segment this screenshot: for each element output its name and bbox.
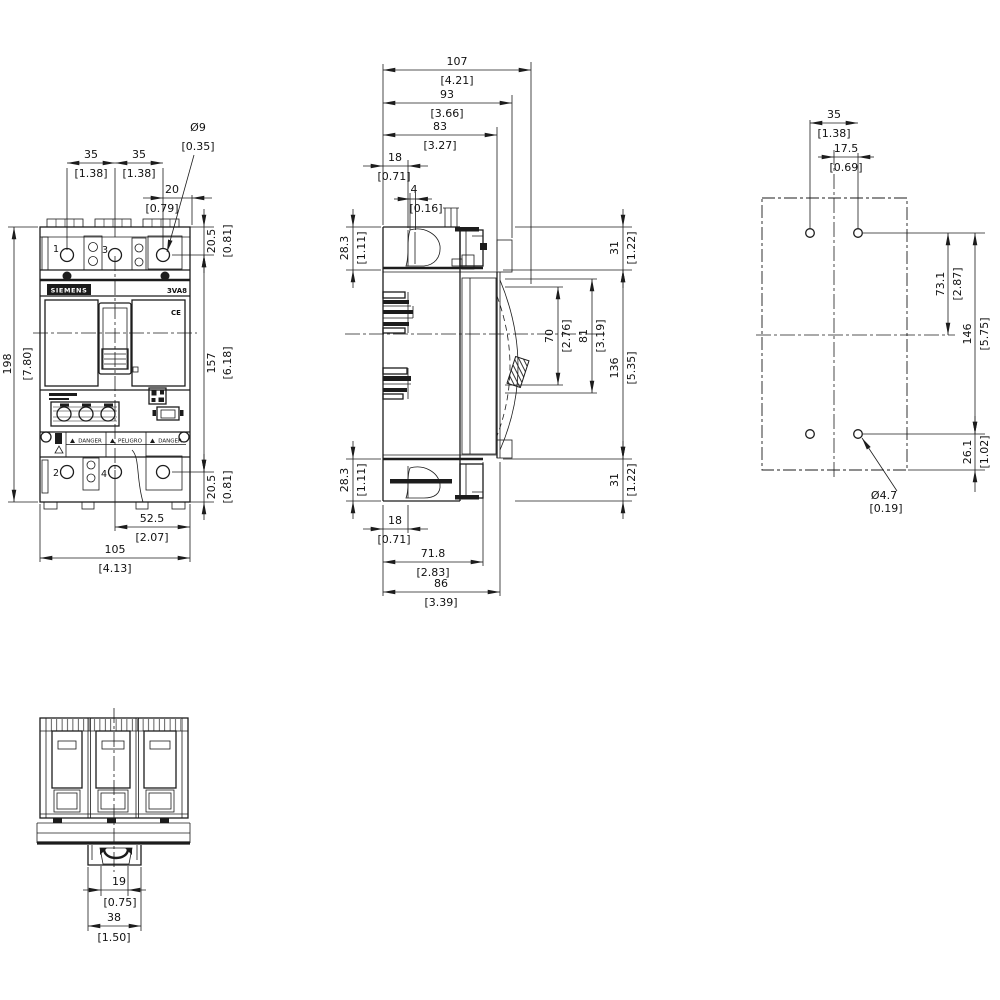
dim-depth-86-in: [3.39] — [424, 596, 457, 609]
brand-text: SIEMENS — [51, 287, 88, 295]
terminal-label-4: 4 — [101, 469, 107, 480]
dim-depth-107-mm: 107 — [447, 55, 468, 68]
dim-inner-height-in: [6.18] — [221, 346, 234, 379]
dim-lower-26-1-in: [1.02] — [978, 435, 991, 468]
dim-bottom-margin-mm: 20.5 — [205, 475, 218, 500]
dim-top-31-in: [1.22] — [625, 231, 638, 264]
breaker-phantom-outline — [762, 198, 907, 470]
cover-screw-top-right — [161, 272, 170, 281]
dim-top-31-mm: 31 — [608, 241, 621, 255]
dim-overall-width-in: [4.13] — [98, 562, 131, 575]
dim-cut-70-mm: 70 — [543, 329, 556, 343]
dim-bottom-margin-in: [0.81] — [221, 470, 234, 503]
warning-text-3: DANGER — [158, 439, 182, 445]
warning-text-2: PELIGRO — [118, 439, 143, 445]
dim-depth-86-mm: 86 — [434, 577, 448, 590]
dim-pitch-left-mm: 35 — [84, 148, 98, 161]
dim-half-width-in: [2.07] — [135, 531, 168, 544]
warning-icon — [55, 433, 62, 444]
model-text: 3VA8 — [167, 287, 187, 295]
dim-step-4-mm: 4 — [411, 183, 418, 196]
pole-compartment-middle — [96, 731, 130, 788]
dim-bot-28-3-mm: 28.3 — [338, 468, 351, 493]
dimension-drawing: 1 3 SIEMENS 3VA8 CE — [0, 0, 1000, 1000]
dim-cut-81-mm: 81 — [577, 329, 590, 343]
terminal-hole-1 — [61, 249, 74, 262]
dim-depth-83-in: [3.27] — [423, 139, 456, 152]
dim-front-136-mm: 136 — [608, 358, 621, 379]
dim-depth-71-8-mm: 71.8 — [421, 547, 446, 560]
dim-inner-height-mm: 157 — [205, 353, 218, 374]
dim-hole-dia-mm: Ø9 — [190, 121, 206, 134]
drilling-pattern-dimensions: 35 [1.38] 17.5 [0.69] 73.1 [2.87] 146 [5… — [810, 108, 991, 515]
dim-hole-offset-mm: 20 — [165, 183, 179, 196]
dim-slot-19-mm: 19 — [112, 875, 126, 888]
dim-hole-pitch-35-mm: 35 — [827, 108, 841, 121]
handle-travel-arc — [497, 296, 510, 436]
dim-half-17-5-in: [0.69] — [829, 161, 862, 174]
pole-compartment-right — [144, 731, 176, 788]
dim-bot-31-mm: 31 — [608, 473, 621, 487]
dim-drill-hole-dia-in: [0.19] — [869, 502, 902, 515]
terminal-label-3: 3 — [102, 245, 108, 256]
front-view: 1 3 SIEMENS 3VA8 CE — [1, 121, 234, 575]
dimension-drawing-canvas: 1 3 SIEMENS 3VA8 CE — [0, 0, 1000, 1000]
dim-pitch-right-in: [1.38] — [122, 167, 155, 180]
dim-bot-18-in: [0.71] — [377, 533, 410, 546]
dim-bot-31-in: [1.22] — [625, 463, 638, 496]
side-view-body — [383, 208, 529, 501]
dim-upper-73-1-in: [2.87] — [951, 267, 964, 300]
setting-dial-2 — [79, 407, 93, 421]
dim-hole-offset-in: [0.79] — [145, 202, 178, 215]
dim-overall-height-mm: 198 — [1, 354, 14, 375]
dim-hole-dia-in: [0.35] — [181, 140, 214, 153]
dim-bot-18-mm: 18 — [388, 514, 402, 527]
dim-span-146-in: [5.75] — [978, 317, 991, 350]
dim-cut-81-in: [3.19] — [594, 319, 607, 352]
dim-depth-83-mm: 83 — [433, 120, 447, 133]
dim-foot-38-in: [1.50] — [97, 931, 130, 944]
dim-top-margin-in: [0.81] — [221, 224, 234, 257]
mount-screw-left — [41, 432, 51, 442]
dim-pitch-left-in: [1.38] — [74, 167, 107, 180]
dim-upper-73-1-mm: 73.1 — [934, 272, 947, 297]
cover-screw-top-left — [63, 272, 72, 281]
mounting-hole-bottom-left — [806, 430, 815, 439]
dim-top-18-in: [0.71] — [377, 170, 410, 183]
dim-half-width-mm: 52.5 — [140, 512, 165, 525]
mounting-hole-top-left — [806, 229, 815, 238]
terminal-label-1: 1 — [53, 244, 59, 255]
dim-bot-28-3-in: [1.11] — [355, 463, 368, 496]
dim-overall-height-in: [7.80] — [21, 347, 34, 380]
dim-foot-38-mm: 38 — [107, 911, 121, 924]
dim-top-28-3-in: [1.11] — [355, 231, 368, 264]
side-view: 107 [4.21] 93 [3.66] 83 [3.27] 18 [0.71]… — [338, 55, 638, 609]
warning-triangle-icon — [55, 446, 63, 453]
dim-top-28-3-mm: 28.3 — [338, 236, 351, 261]
escutcheon-frame — [462, 278, 496, 454]
front-view-dimensions: 35 [1.38] 35 [1.38] Ø9 [0.35] 20 [0.79] … — [1, 121, 234, 575]
dim-overall-width-mm: 105 — [105, 543, 126, 556]
dim-hole-pitch-35-in: [1.38] — [817, 127, 850, 140]
terminal-label-2: 2 — [53, 468, 59, 479]
mounting-hole-bottom-right — [854, 430, 863, 439]
dim-span-146-mm: 146 — [961, 324, 974, 345]
pole-compartment-left — [52, 731, 82, 788]
bottom-view-body — [37, 708, 190, 872]
drilling-pattern-view: 35 [1.38] 17.5 [0.69] 73.1 [2.87] 146 [5… — [756, 108, 991, 515]
handle-grip — [507, 357, 529, 388]
top-terminal-lug — [460, 230, 483, 266]
bottom-view: 19 [0.75] 38 [1.50] — [37, 708, 190, 944]
setting-dial-1 — [57, 407, 71, 421]
bottom-view-dimensions: 19 [0.75] 38 [1.50] — [83, 866, 146, 944]
dim-cut-70-in: [2.76] — [560, 319, 573, 352]
setting-dial-3 — [101, 407, 115, 421]
dim-front-136-in: [5.35] — [625, 351, 638, 384]
bottom-terminal-lug — [460, 464, 483, 498]
dim-top-18-mm: 18 — [388, 151, 402, 164]
dim-lower-26-1-mm: 26.1 — [961, 440, 974, 465]
dim-step-4-in: [0.16] — [409, 202, 442, 215]
dim-top-margin-mm: 20.5 — [205, 229, 218, 254]
warning-text-1: DANGER — [78, 439, 102, 445]
terminal-hole-2 — [61, 466, 74, 479]
dim-drill-hole-dia-mm: Ø4.7 — [871, 489, 897, 502]
dim-half-17-5-mm: 17.5 — [834, 142, 859, 155]
dim-depth-93-in: [3.66] — [430, 107, 463, 120]
dim-depth-107-in: [4.21] — [440, 74, 473, 87]
dim-pitch-right-mm: 35 — [132, 148, 146, 161]
mounting-hole-top-right — [854, 229, 863, 238]
dim-slot-19-in: [0.75] — [103, 896, 136, 909]
dim-depth-93-mm: 93 — [440, 88, 454, 101]
face-panel-left — [45, 300, 98, 386]
ce-mark: CE — [171, 309, 181, 317]
terminal-hole-6 — [157, 466, 170, 479]
